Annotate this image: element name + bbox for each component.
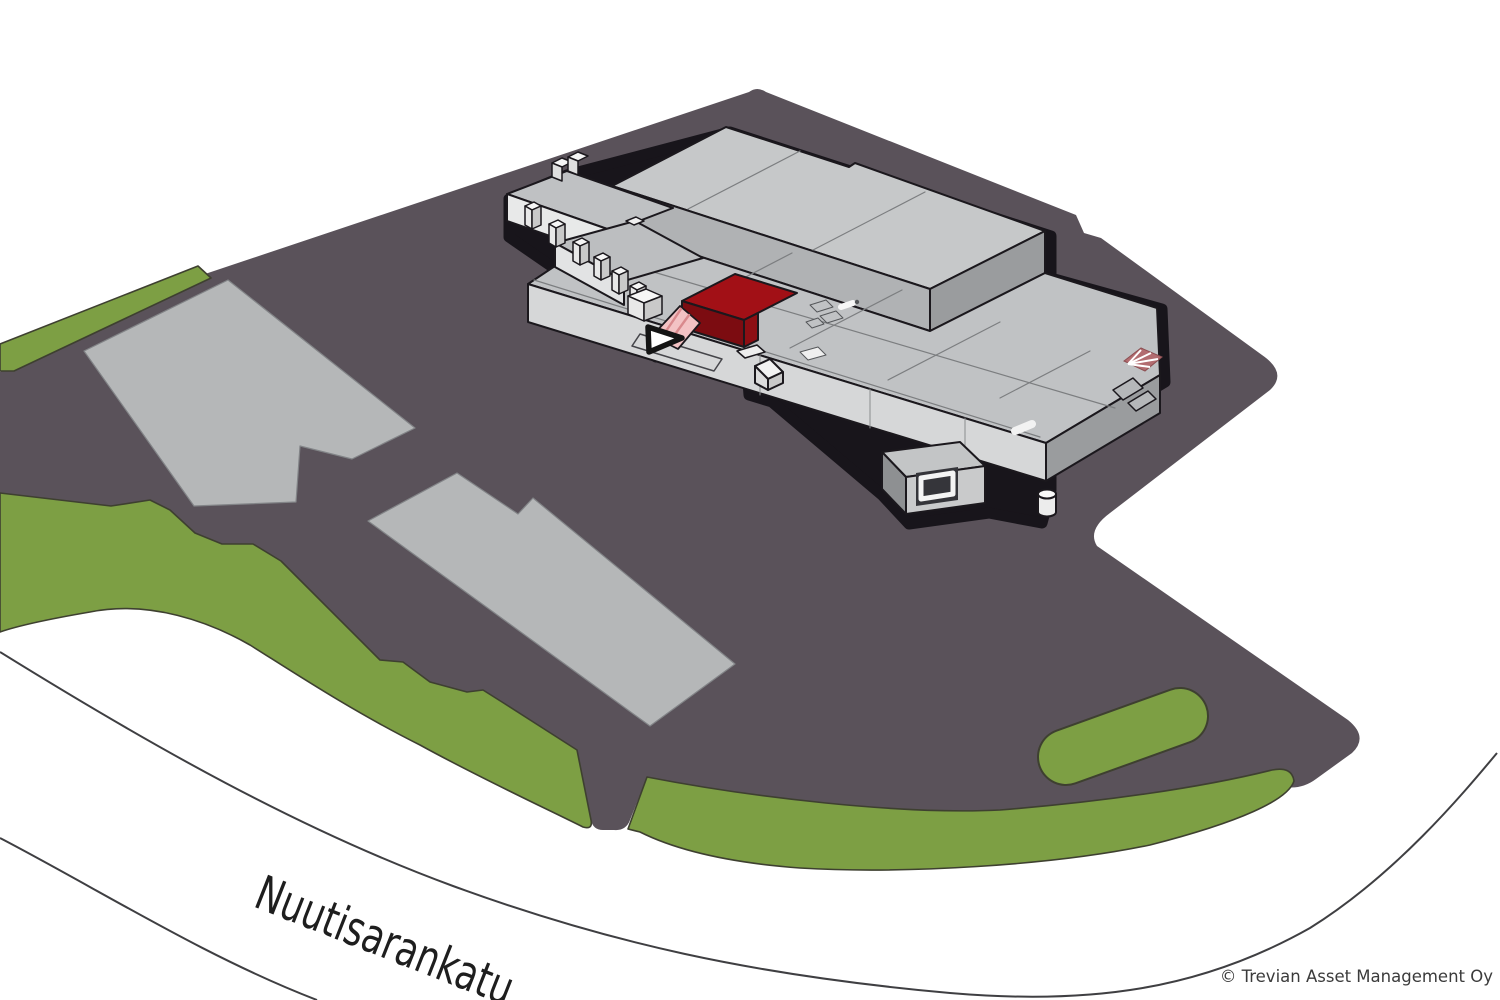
roof-box (552, 163, 562, 181)
vent-pipe (841, 303, 853, 307)
dock-box (549, 220, 565, 247)
dock-box (594, 253, 610, 280)
site-plan-canvas: Nuutisarankatu © Trevian Asset Managemen… (0, 0, 1500, 1000)
dock-box-large (628, 289, 662, 321)
site-plan-svg: Nuutisarankatu © Trevian Asset Managemen… (0, 0, 1500, 1000)
dock-box (573, 238, 589, 265)
roof-box (568, 157, 578, 175)
street-label: Nuutisarankatu (248, 865, 522, 1000)
silo-cylinder (1038, 490, 1056, 517)
dock-box (612, 267, 628, 294)
vent-dot (855, 300, 859, 304)
copyright-text: © Trevian Asset Management Oy (1220, 967, 1493, 986)
dock-box (525, 202, 541, 229)
highlighted-unit-side (744, 313, 758, 347)
silo-top (1038, 490, 1056, 499)
